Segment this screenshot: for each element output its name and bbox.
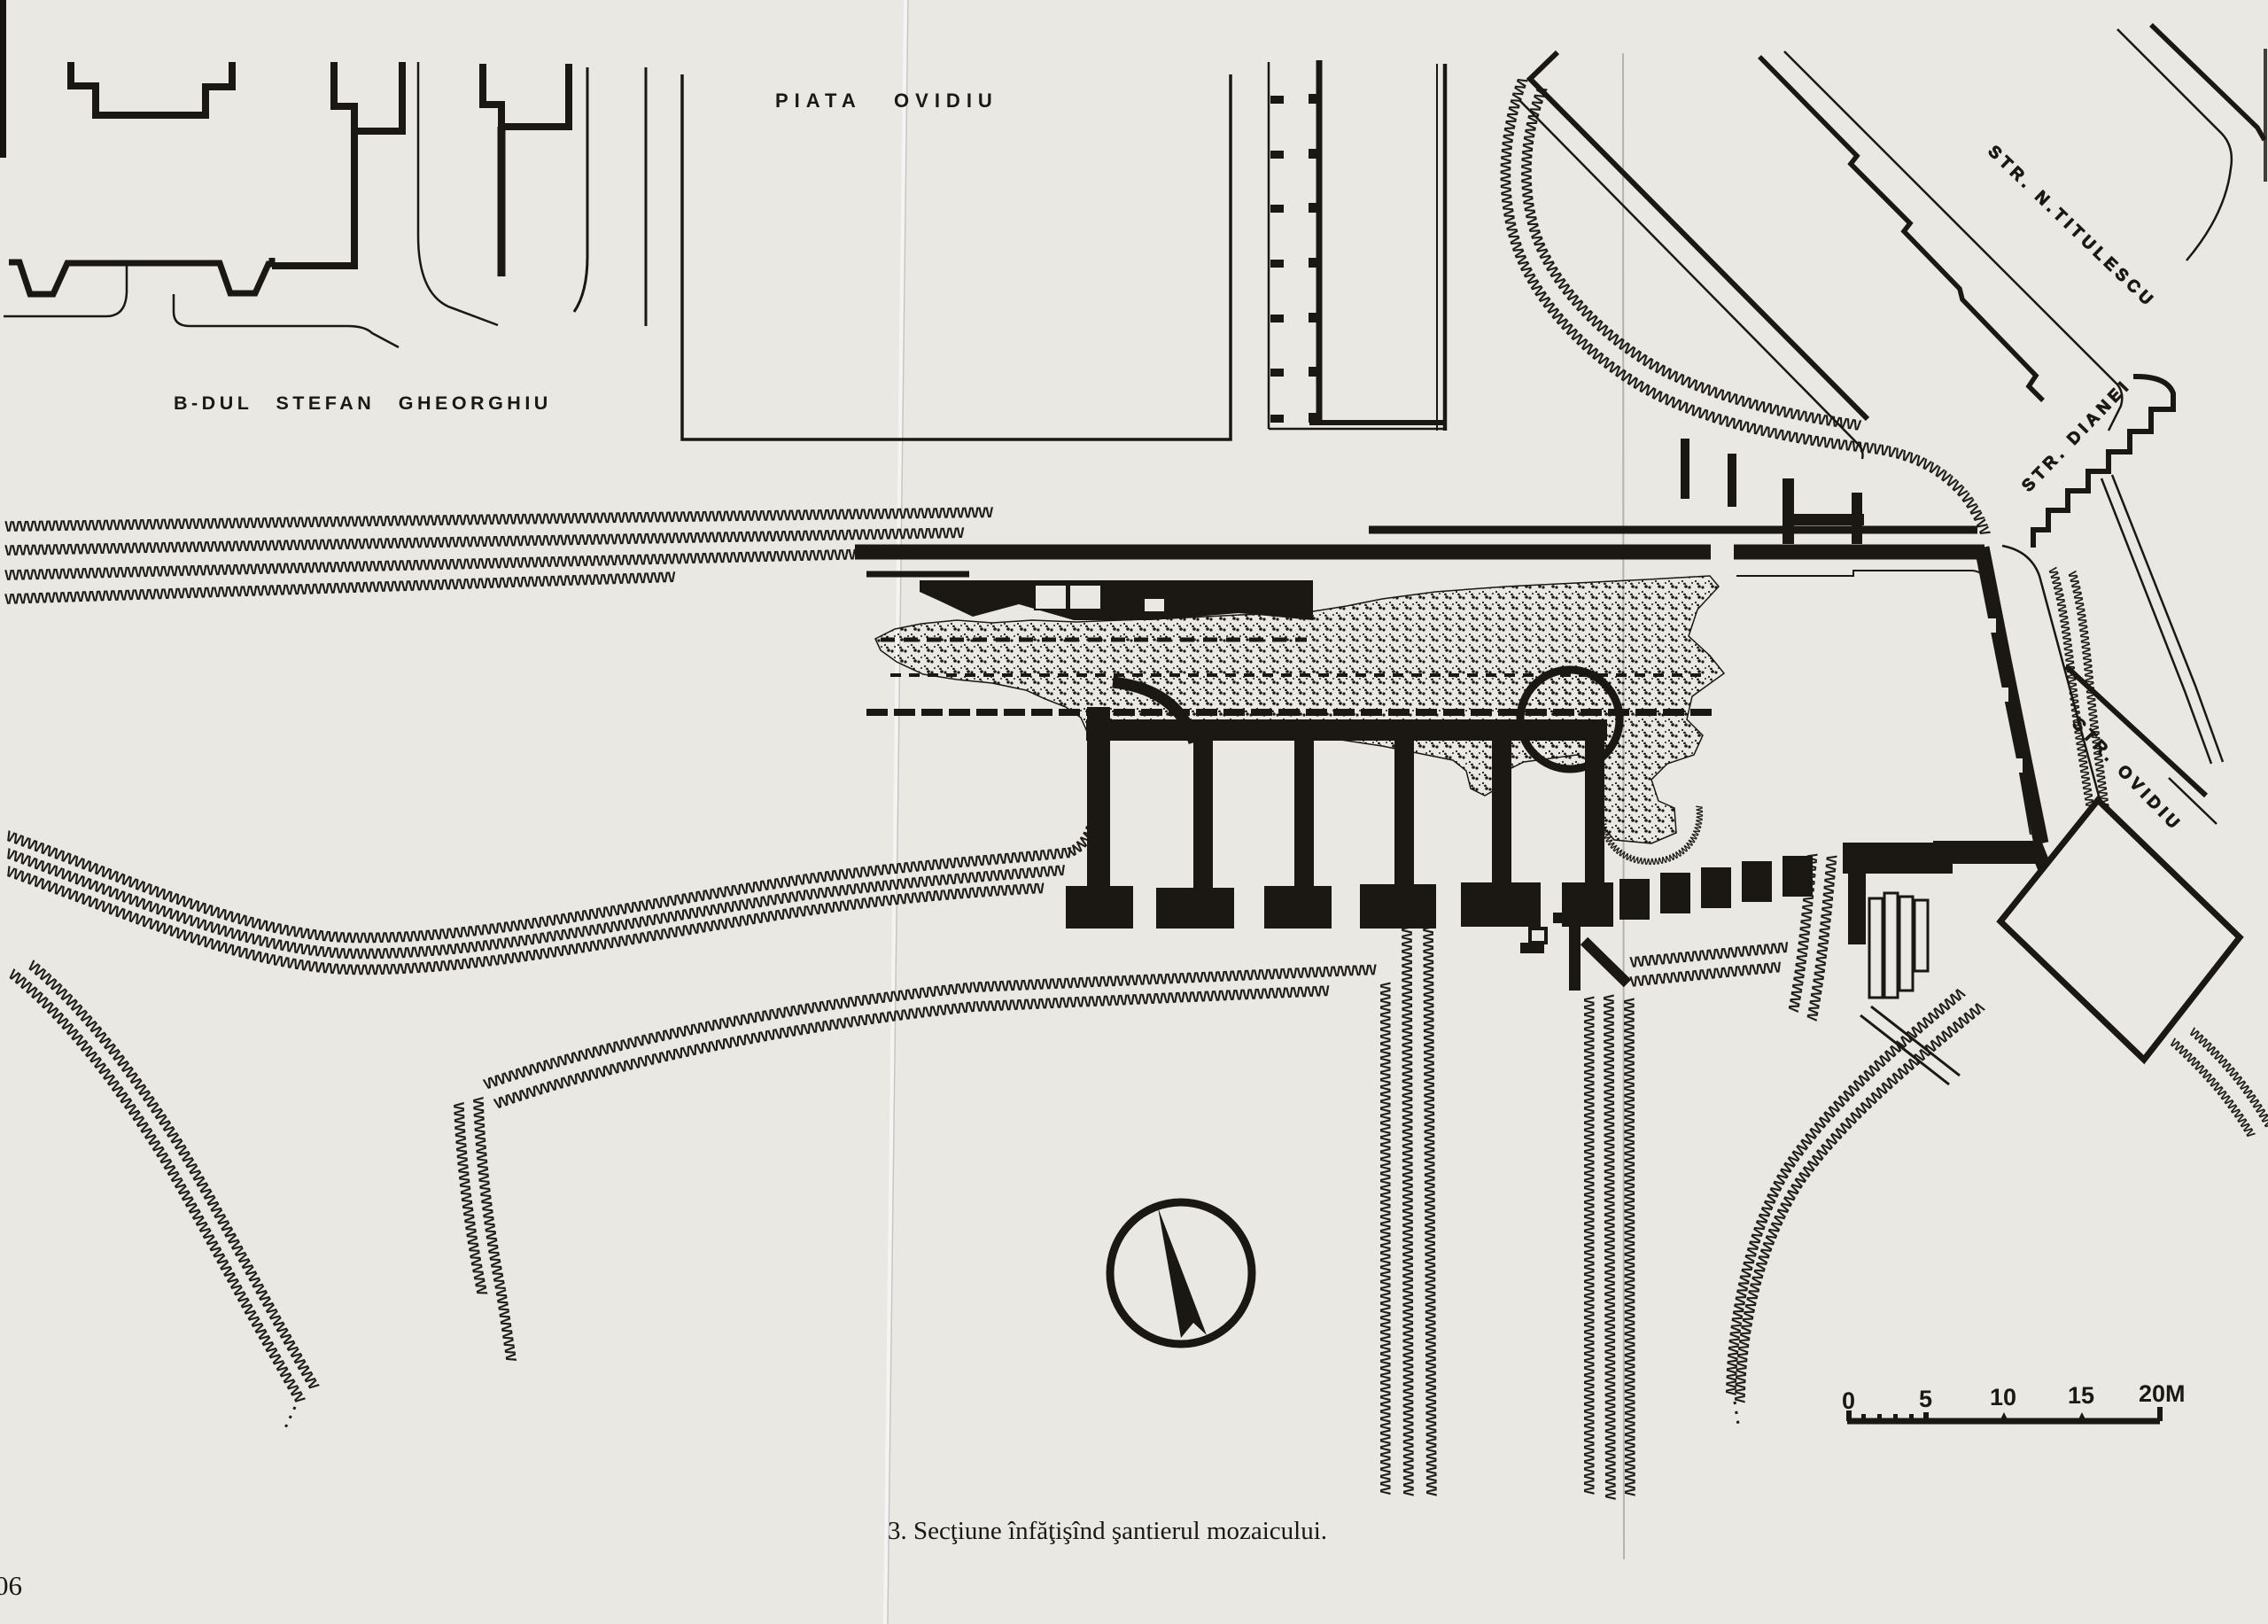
pillar-footing: [1264, 886, 1332, 929]
scanned-book-page: VVVVVVVVVVVVVVVVVVVVVVVVVVVVVVVVVVVVVVVV…: [0, 0, 2268, 1624]
scale-label-5: 5: [1919, 1386, 1932, 1412]
scale-label-20m: 20M: [2139, 1380, 2186, 1407]
boulevard-label: B-DUL STEFAN GHEORGHIU: [174, 392, 552, 414]
square-label: PIATA OVIDIU: [775, 89, 998, 112]
paper-background: [0, 0, 2268, 1624]
pillar-footing: [1066, 886, 1133, 929]
scale-label-0: 0: [1842, 1387, 1855, 1414]
pillar-footing: [1461, 882, 1541, 927]
figure-caption: 3. Secţiune înfăţişînd şantierul mozaicu…: [888, 1517, 1327, 1545]
scan-edge-mark: [2264, 49, 2267, 182]
scale-label-15: 15: [2068, 1382, 2094, 1409]
pillar-footing: [1360, 884, 1436, 929]
pillar-footing: [1156, 888, 1234, 929]
scan-edge-mark: [0, 0, 6, 158]
site-plan-figure: VVVVVVVVVVVVVVVVVVVVVVVVVVVVVVVVVVVVVVVV…: [0, 0, 2268, 1624]
scale-label-10: 10: [1990, 1384, 2016, 1410]
page-number: 06: [0, 1570, 22, 1601]
room-top-wall: [1086, 719, 1607, 741]
